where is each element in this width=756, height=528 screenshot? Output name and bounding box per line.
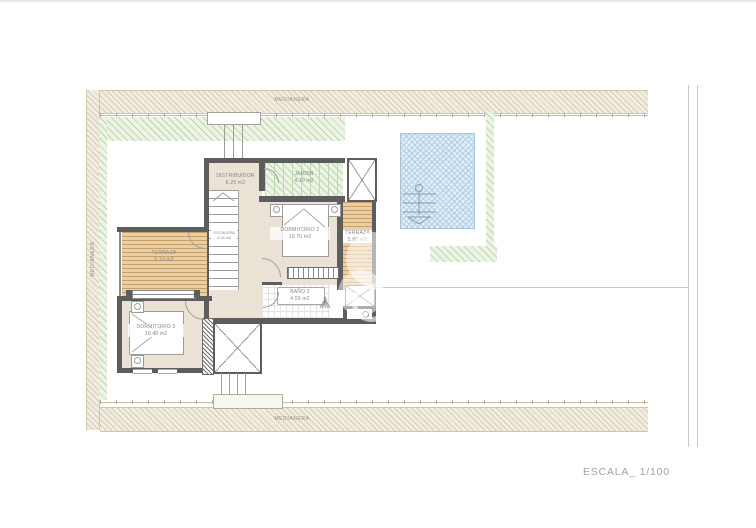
- shower-icon: [318, 296, 332, 310]
- garden-band-right: [430, 246, 497, 262]
- sliding-door-jamb-right: [194, 290, 200, 298]
- window-grille-bedroom2: [287, 267, 339, 279]
- party-wall-bottom-label: MEDIANERA: [252, 416, 332, 422]
- party-wall-bottom: MEDIANERA: [100, 407, 648, 432]
- garden-room-label: JARDÍN 4.10 m2: [265, 171, 343, 184]
- staircase-area: 4.15 m2: [217, 235, 231, 240]
- wall-terrace-left-edge: [119, 232, 121, 296]
- garden-room-area: 4.10 m2: [265, 178, 343, 185]
- hall-name: DISTRIBUIDOR: [209, 173, 262, 180]
- bedroom2-label: DORMITORIO 2 10.70 m2: [270, 227, 330, 240]
- watermark-ring: [352, 284, 390, 322]
- terrace-left-label: TERRAZA 9.10 m2: [134, 250, 194, 263]
- sliding-door-terrace: [132, 290, 196, 299]
- plot-boundary-line-inner: [697, 85, 698, 447]
- bathroom-label: BAÑO 2 4.55 m2: [277, 289, 323, 302]
- entry-path: [224, 123, 251, 158]
- party-wall-top-label: MEDIANERA: [252, 97, 332, 103]
- plot-line-right: [375, 287, 688, 288]
- bedroom3-label: DORMITORIO 3 10.40 m2: [128, 324, 184, 337]
- wall-jardin-bottom: [259, 196, 345, 202]
- nightstand-bedroom2-left: [270, 204, 283, 217]
- window-bedroom3-b: [158, 369, 177, 374]
- bedroom3-area: 10.40 m2: [128, 331, 184, 338]
- nightstand-bedroom2-right: [328, 204, 341, 217]
- nightstand-bedroom3-bottom: [131, 355, 144, 368]
- wall-bedroom3-left: [117, 296, 122, 373]
- party-wall-top: MEDIANERA: [100, 90, 648, 114]
- scale-label: ESCALA_ 1/100: [583, 466, 670, 478]
- rear-landing: [213, 394, 283, 409]
- floor-plan-canvas: MEDIANERA MEDIANERA MEDIANERA: [0, 0, 756, 528]
- page-top-border: [0, 0, 756, 2]
- sliding-door-jamb-left: [126, 290, 132, 298]
- nightstand-bedroom3-top: [131, 301, 144, 313]
- pilotis-lines: [221, 373, 251, 396]
- party-wall-left: MEDIANERA: [86, 90, 100, 430]
- hall-label: DISTRIBUIDOR 8.20 m2: [209, 173, 262, 186]
- pool: [400, 133, 475, 229]
- hall-area: 8.20 m2: [209, 180, 262, 187]
- dimension-ticks-bottom: [100, 400, 648, 405]
- pool-ladder-icon: [402, 182, 440, 226]
- bedroom2-area: 10.70 m2: [270, 234, 330, 241]
- bathroom-area: 4.55 m2: [277, 296, 323, 303]
- party-wall-left-label: MEDIANERA: [90, 219, 96, 299]
- garden-strip-left: [99, 117, 107, 400]
- central-void-box: [213, 322, 262, 374]
- entry-landing: [207, 112, 261, 125]
- garden-strip-right: [486, 112, 494, 262]
- window-bedroom3-a: [133, 369, 152, 374]
- pergola-void-box: [347, 158, 377, 202]
- plot-boundary-line-outer: [688, 85, 689, 447]
- terrace-left-area: 9.10 m2: [134, 257, 194, 264]
- stairs-up-arrow-icon: [209, 191, 238, 203]
- staircase-label: ESCALERA 4.15 m2: [211, 229, 237, 246]
